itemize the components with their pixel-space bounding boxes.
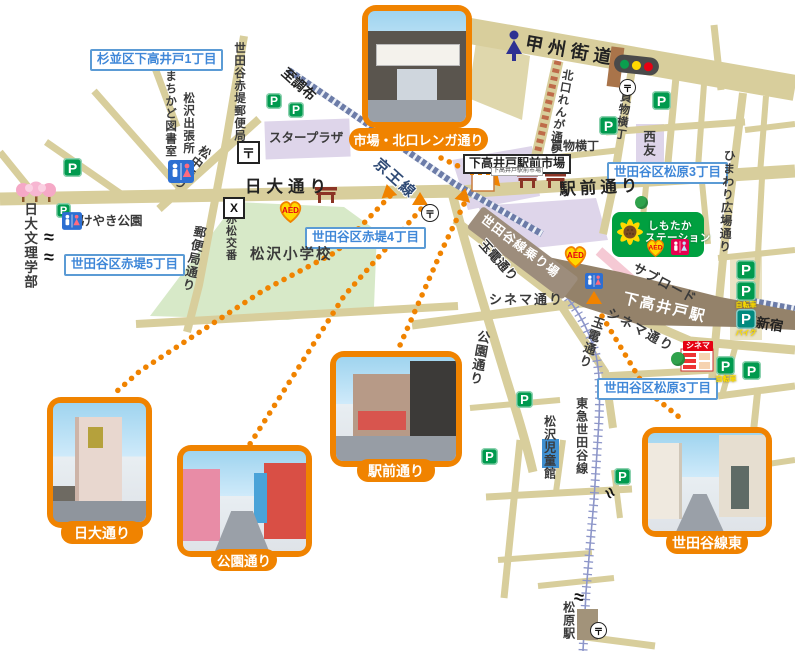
post-mark: 〒 xyxy=(242,143,255,162)
photo-image xyxy=(183,451,306,551)
rail-name-tokyu-setagaya-line: 東急世田谷線 xyxy=(575,397,588,475)
photo-road xyxy=(336,436,456,461)
toilet-icon xyxy=(585,273,603,289)
post-office-icon: 〒 xyxy=(237,141,260,164)
post-icon: 〒 xyxy=(590,622,607,639)
toilet-icon xyxy=(168,160,194,183)
cinema-building-icon xyxy=(681,349,713,371)
photo-building xyxy=(183,469,220,541)
photo-road xyxy=(368,100,466,122)
district-label-matsubara3-south: 世田谷区松原3丁目 xyxy=(597,378,718,400)
photo-building xyxy=(410,361,456,446)
photo-setagaya-line-east xyxy=(642,427,772,537)
toilet-icon xyxy=(671,239,689,255)
parking-letter: P xyxy=(604,118,613,134)
parking-bicycle-icon: P xyxy=(736,281,756,301)
parking-letter: P xyxy=(741,283,751,300)
wave-mark-icon: ≈ xyxy=(44,248,54,266)
post-mark: 〒 xyxy=(623,81,633,95)
parking-letter: P xyxy=(520,392,529,407)
photo-road xyxy=(53,501,146,522)
parking-icon: P xyxy=(652,91,671,110)
aed-icon: AED xyxy=(644,238,667,257)
photo-banner xyxy=(376,44,460,66)
parking-icon: P xyxy=(614,468,631,485)
road xyxy=(760,96,766,174)
photo-road xyxy=(676,494,723,531)
place-name-seiyu: 西友 xyxy=(641,130,654,157)
photo-label-market: 市場・北口レンガ通り xyxy=(349,128,488,151)
aed-text: AED xyxy=(648,244,662,251)
photo-image xyxy=(648,433,766,531)
photo-nichidai-dori xyxy=(47,397,152,528)
parking-icon: P xyxy=(599,116,618,135)
place-name-matsuzawa-branch: 松沢出張所 xyxy=(182,92,194,155)
market-tiny-sign: 下高井戸駅前市場 xyxy=(491,167,543,176)
cherry-blossom-icon xyxy=(16,182,56,203)
traffic-light-green xyxy=(619,59,629,69)
aed-text: AED xyxy=(282,206,299,215)
place-name-matsuzawa-elementary: 松沢小学校 xyxy=(250,248,333,263)
post-icon: 〒 xyxy=(619,79,636,96)
post-icon: 〒 xyxy=(421,204,439,222)
road xyxy=(504,440,520,598)
photo-label-nichidai-dori: 日大通り xyxy=(61,521,143,544)
parking-letter: P xyxy=(485,449,494,464)
district-label-akatsutsumi4: 世田谷区赤堤4丁目 xyxy=(305,227,426,249)
parking-letter: P xyxy=(721,358,730,374)
bicycle-parking-label: 自転車 xyxy=(712,376,740,383)
road xyxy=(538,578,614,586)
parking-icon: P xyxy=(266,93,282,109)
photo-doorway xyxy=(731,466,750,509)
photo-image xyxy=(368,11,466,122)
cinema-sign: シネマ xyxy=(683,341,713,351)
parking-letter: P xyxy=(292,103,300,117)
parking-letter: P xyxy=(657,93,666,109)
place-name-star-plaza: スタープラザ xyxy=(269,132,343,145)
photo-building xyxy=(648,443,682,519)
parking-letter: P xyxy=(270,94,278,108)
wave-mark-icon: ≈ xyxy=(44,228,54,246)
photo-label-setagaya-line-east: 世田谷線東 xyxy=(666,531,748,554)
parking-icon: P xyxy=(736,260,756,280)
photo-ekimae-dori xyxy=(330,351,462,467)
aed-icon: AED xyxy=(277,199,304,223)
photo-building xyxy=(254,473,266,523)
road xyxy=(745,124,795,130)
road xyxy=(470,400,560,408)
district-label-suginami: 杉並区下高井戸1丁目 xyxy=(90,49,223,71)
aed-text: AED xyxy=(567,251,584,260)
place-name-matsuzawa-jidokan: 松沢児童館 xyxy=(543,415,556,480)
photo-sign xyxy=(88,427,103,448)
parking-letter: P xyxy=(618,469,627,484)
shimotakaido-area-map: 杉並区下高井戸1丁目 世田谷区赤堤5丁目 世田谷区赤堤4丁目 世田谷区松原3丁目… xyxy=(0,0,795,651)
place-name-keyaki-park: けやき公園 xyxy=(80,215,143,228)
station-name-matsubara: 松原駅 xyxy=(562,601,575,640)
post-mark: 〒 xyxy=(425,206,435,221)
photo-koen-dori xyxy=(177,445,312,557)
tree-icon xyxy=(671,352,685,366)
road xyxy=(46,142,121,194)
parking-bike-icon: P xyxy=(736,309,756,329)
parking-bicycle-icon: P xyxy=(716,356,735,375)
place-name-machikado-library: まちかど図書室 xyxy=(164,70,176,158)
photo-image xyxy=(53,403,146,522)
photo-label-ekimae-dori: 駅前通り xyxy=(357,459,435,482)
shimotaka-station-box: しもたか ステーション AED xyxy=(612,212,704,257)
parking-letter: P xyxy=(741,311,751,328)
photo-passage xyxy=(397,69,436,100)
bike-parking-label: バイク xyxy=(733,330,759,337)
place-name-nichidai-bunri: 日大文理学部 xyxy=(22,202,36,289)
street-name-kaimono-yokocho-h: 買物横丁 xyxy=(551,140,599,152)
photo-label-koen-dori: 公園通り xyxy=(211,549,277,571)
parking-letter: P xyxy=(747,363,756,379)
street-name-nichidai-dori: 日大通り xyxy=(245,179,331,196)
post-mark: 〒 xyxy=(594,624,604,638)
road xyxy=(498,553,592,560)
photo-image xyxy=(336,357,456,461)
parking-letter: P xyxy=(68,160,77,176)
district-label-akatsutsumi5: 世田谷区赤堤5丁目 xyxy=(64,254,185,276)
koban-mark: X xyxy=(230,201,238,215)
sunflower-icon xyxy=(614,216,646,252)
parking-icon: P xyxy=(288,102,304,118)
parking-icon: P xyxy=(742,361,761,380)
koban-icon: X xyxy=(223,197,245,219)
photo-market xyxy=(362,5,472,128)
parking-icon: P xyxy=(481,448,498,465)
parking-icon: P xyxy=(516,391,533,408)
street-name-cinema-dori-west: シネマ通り xyxy=(489,293,564,306)
tree-icon xyxy=(635,196,648,209)
traffic-light-yellow xyxy=(632,60,642,70)
photo-storefront xyxy=(358,411,406,430)
aed-icon: AED xyxy=(562,244,589,268)
place-name-akatsutsumi-post-office: 世田谷赤堤郵便局 xyxy=(233,42,245,142)
traffic-light-red xyxy=(644,61,654,71)
toilet-icon xyxy=(62,212,82,230)
bicycle-parking-label: 自転車 xyxy=(731,302,761,309)
parking-icon: P xyxy=(63,158,82,177)
photo-building xyxy=(264,463,306,539)
parking-letter: P xyxy=(741,262,751,279)
place-name-akamatsu-koban: 赤松交番 xyxy=(224,213,236,261)
